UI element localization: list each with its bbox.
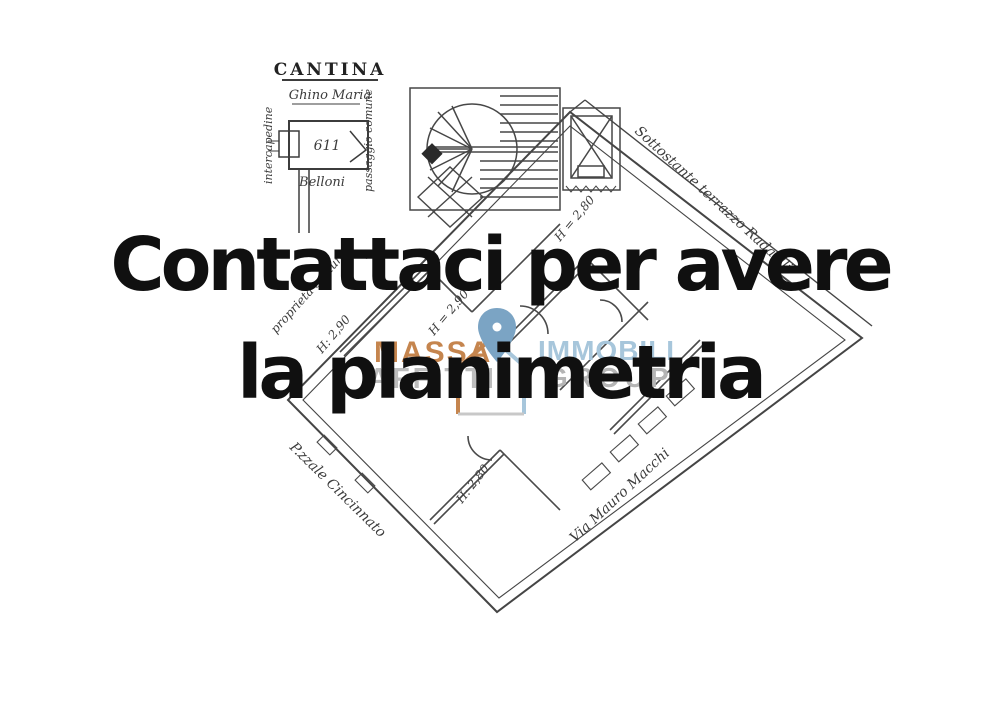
cantina-owner: Ghino Maria <box>289 88 371 103</box>
cantina-title: CANTINA <box>274 60 387 80</box>
overlay-line-1: Contattaci per avere <box>0 228 1000 302</box>
cantina-bottom-note: Belloni <box>298 175 345 190</box>
label-street-left: P.zzale Cincinnato <box>285 439 388 541</box>
lower-stair-landing <box>418 167 483 227</box>
listing-image: CANTINA Ghino Maria 611 Belloni intercap… <box>0 0 1000 728</box>
overlay-line-2: la planimetria <box>0 336 1000 410</box>
label-height-4: H: 2,80 <box>453 461 493 506</box>
cantina-right-note: passaggio comune <box>362 88 375 192</box>
cantina-left-note: intercapedine <box>262 106 275 184</box>
cantina-unit: 611 <box>314 138 341 154</box>
elevator-shaft <box>563 108 620 192</box>
